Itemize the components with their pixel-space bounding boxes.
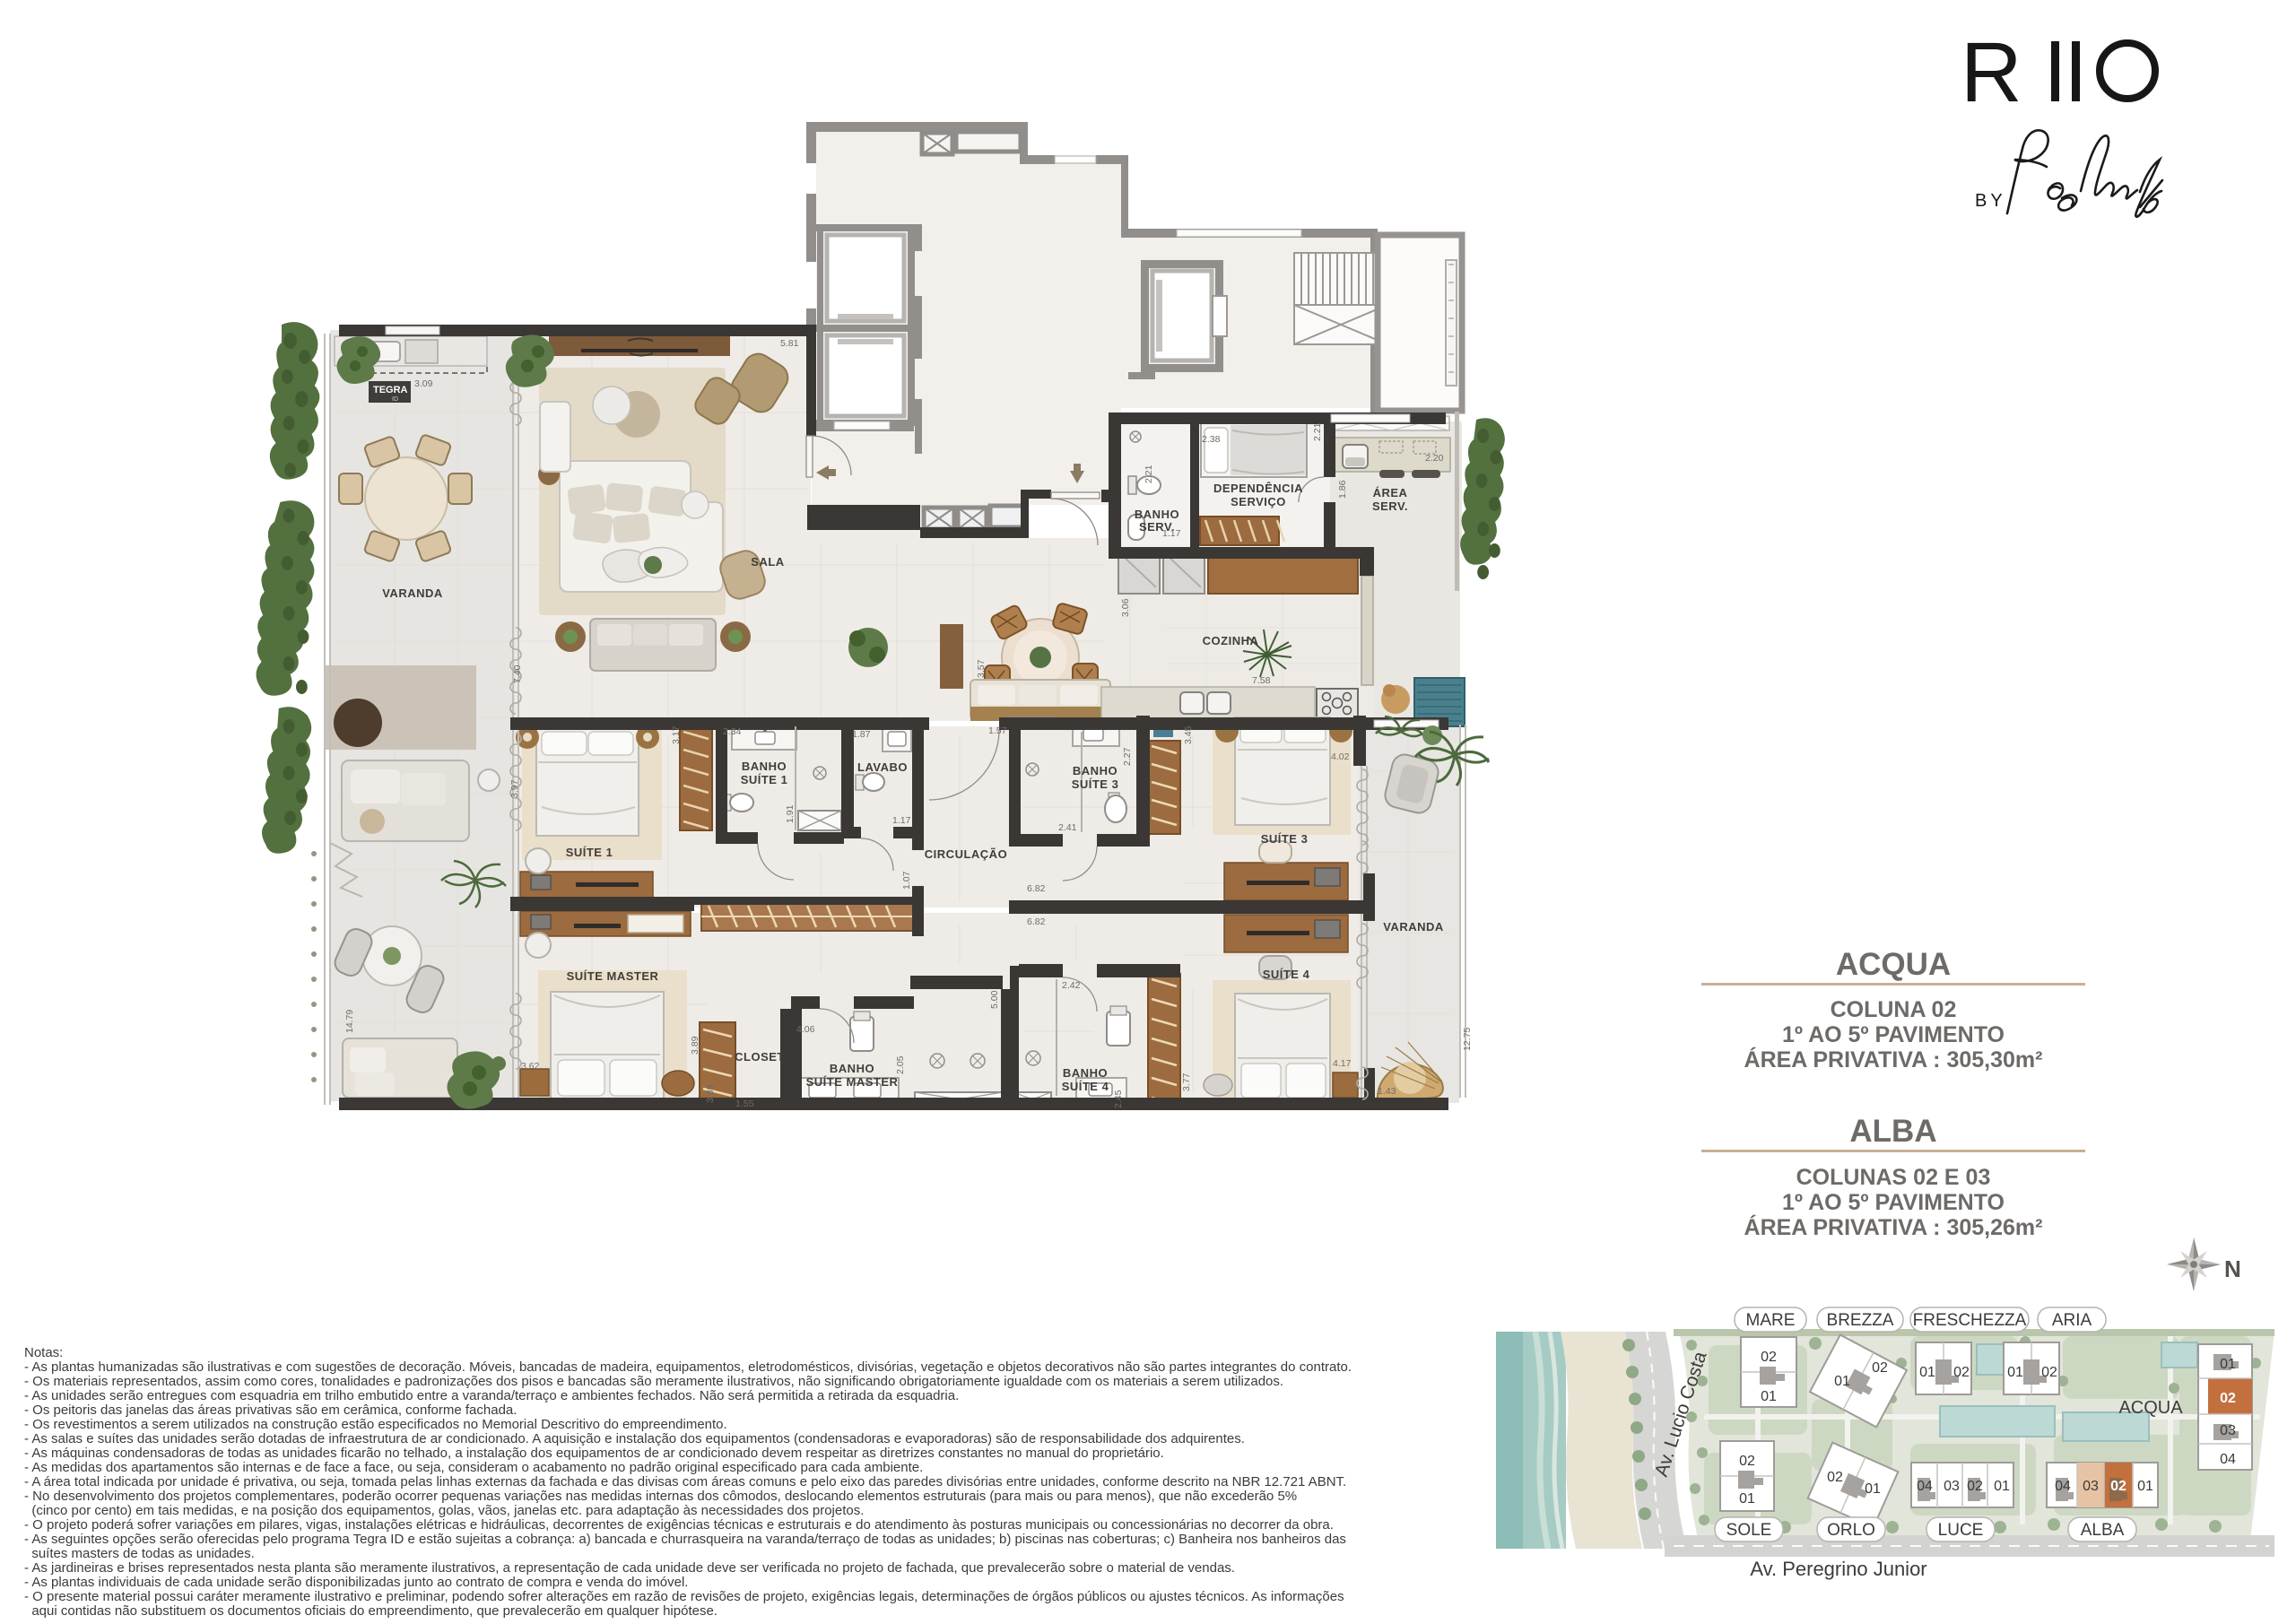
svg-text:1.57: 1.57 [988, 725, 1007, 736]
svg-text:2.42: 2.42 [1062, 980, 1081, 991]
svg-text:- As seguintes opções serão of: - As seguintes opções serão oferecidas p… [24, 1532, 1346, 1547]
svg-text:02: 02 [1761, 1350, 1777, 1365]
svg-text:R: R [1961, 25, 2024, 120]
svg-text:SUÍTE 3: SUÍTE 3 [1261, 832, 1309, 846]
svg-text:2.34: 2.34 [723, 726, 742, 737]
svg-text:01: 01 [1834, 1374, 1850, 1389]
svg-text:DEPENDÊNCIA: DEPENDÊNCIA [1213, 482, 1303, 495]
svg-text:2.38: 2.38 [1202, 434, 1221, 445]
svg-text:02: 02 [1953, 1365, 1970, 1380]
svg-text:- As jardineiras e brises repr: - As jardineiras e brises representados … [24, 1560, 1235, 1576]
svg-text:SERV.: SERV. [1372, 499, 1408, 513]
svg-text:ACQUA: ACQUA [2118, 1398, 2183, 1418]
svg-text:MARE: MARE [1746, 1311, 1796, 1330]
svg-text:ALBA: ALBA [1849, 1114, 1936, 1149]
svg-text:BANHO: BANHO [830, 1062, 874, 1075]
svg-text:CIRCULAÇÃO: CIRCULAÇÃO [925, 847, 1007, 861]
svg-text:6.82: 6.82 [1027, 883, 1046, 894]
svg-text:BREZZA: BREZZA [1827, 1311, 1894, 1330]
svg-text:03: 03 [2220, 1423, 2236, 1438]
svg-text:LUCE: LUCE [1938, 1521, 1984, 1540]
svg-text:Notas:: Notas: [24, 1345, 63, 1360]
svg-text:01: 01 [2137, 1479, 2153, 1494]
svg-text:1.17: 1.17 [1162, 528, 1181, 539]
svg-text:- As medidas dos apartamentos: - As medidas dos apartamentos são intern… [24, 1460, 923, 1475]
svg-text:12.75: 12.75 [1462, 1028, 1473, 1051]
svg-text:3.09: 3.09 [414, 378, 433, 389]
svg-text:SUÍTE 4: SUÍTE 4 [1263, 968, 1310, 981]
svg-text:- Os revestimentos a serem uti: - Os revestimentos a serem utilizados na… [24, 1417, 727, 1432]
svg-text:ORLO: ORLO [1827, 1521, 1875, 1540]
svg-text:1.86: 1.86 [1337, 480, 1348, 499]
svg-text:7.40: 7.40 [512, 664, 523, 683]
svg-text:02: 02 [2110, 1479, 2126, 1494]
svg-text:VARANDA: VARANDA [382, 586, 443, 600]
svg-text:BANHO: BANHO [1063, 1066, 1108, 1080]
svg-text:FRESCHEZZA: FRESCHEZZA [1913, 1311, 2027, 1330]
svg-text:02: 02 [1827, 1470, 1843, 1485]
svg-text:SUÍTE 3: SUÍTE 3 [1072, 777, 1119, 791]
svg-text:(cinco por cento) em tais medi: (cinco por cento) em tais medidas, e na … [24, 1503, 864, 1518]
svg-text:03: 03 [2083, 1479, 2099, 1494]
svg-text:2.45: 2.45 [1113, 1090, 1124, 1108]
svg-text:SUÍTE MASTER: SUÍTE MASTER [806, 1075, 899, 1089]
svg-text:SUÍTE 4: SUÍTE 4 [1062, 1080, 1109, 1093]
svg-text:01: 01 [2220, 1357, 2236, 1372]
svg-text:SUÍTE 1: SUÍTE 1 [741, 773, 788, 786]
svg-text:1º AO 5º PAVIMENTO: 1º AO 5º PAVIMENTO [1782, 1190, 2005, 1215]
svg-text:02: 02 [2041, 1365, 2057, 1380]
svg-text:LAVABO: LAVABO [857, 760, 908, 774]
svg-text:- O projeto poderá sofrer vari: - O projeto poderá sofrer variações em p… [24, 1517, 1334, 1533]
svg-text:3.62: 3.62 [521, 1061, 540, 1072]
svg-text:- No desenvolvimento dos proje: - No desenvolvimento dos projetos comple… [24, 1489, 1297, 1504]
svg-text:3.57: 3.57 [976, 659, 987, 678]
svg-text:1.07: 1.07 [901, 871, 912, 890]
svg-text:ÁREA PRIVATIVA : 305,30m²: ÁREA PRIVATIVA : 305,30m² [1744, 1046, 2043, 1073]
svg-text:3.97: 3.97 [509, 779, 520, 798]
svg-text:2.21: 2.21 [1312, 422, 1323, 441]
svg-text:7.58: 7.58 [1252, 675, 1271, 686]
svg-text:04: 04 [2220, 1452, 2236, 1467]
svg-text:ACQUA: ACQUA [1836, 947, 1951, 982]
svg-text:ÁREA PRIVATIVA : 305,26m²: ÁREA PRIVATIVA : 305,26m² [1744, 1214, 2043, 1240]
svg-text:COLUNAS 02 E 03: COLUNAS 02 E 03 [1796, 1165, 1991, 1190]
svg-text:BY: BY [1975, 191, 2006, 211]
svg-text:SUÍTE 1: SUÍTE 1 [566, 846, 613, 859]
svg-text:ID: ID [392, 396, 398, 403]
svg-text:BANHO: BANHO [742, 760, 787, 773]
svg-text:- As salas e suítes das unidad: - As salas e suítes das unidades serão d… [24, 1431, 1245, 1446]
svg-text:SOLE: SOLE [1726, 1521, 1772, 1540]
svg-text:02: 02 [1739, 1454, 1755, 1469]
svg-text:- As plantas humanizadas são i: - As plantas humanizadas são ilustrativa… [24, 1359, 1352, 1375]
svg-text:1.17: 1.17 [892, 815, 911, 826]
svg-text:TEGRA: TEGRA [373, 385, 408, 395]
svg-text:3.17: 3.17 [671, 725, 682, 744]
svg-text:BANHO: BANHO [1135, 508, 1179, 521]
svg-text:- O presente material possui c: - O presente material possui caráter mer… [24, 1589, 1344, 1604]
svg-text:01: 01 [2007, 1365, 2023, 1380]
svg-text:04: 04 [2055, 1479, 2071, 1494]
svg-text:01: 01 [1739, 1491, 1755, 1507]
svg-text:02: 02 [2220, 1391, 2236, 1406]
svg-text:01: 01 [1919, 1365, 1935, 1380]
svg-text:SUÍTE MASTER: SUÍTE MASTER [567, 969, 659, 983]
svg-text:VARANDA: VARANDA [1383, 920, 1444, 934]
svg-text:N: N [2224, 1255, 2241, 1282]
svg-text:ALBA: ALBA [2081, 1521, 2125, 1540]
svg-text:4.02: 4.02 [1331, 751, 1350, 762]
svg-text:2.20: 2.20 [1425, 453, 1444, 464]
svg-text:6.82: 6.82 [1027, 916, 1046, 927]
svg-text:14.79: 14.79 [344, 1010, 355, 1033]
svg-text:- As unidades serão entregues: - As unidades serão entregues com esquad… [24, 1388, 959, 1403]
svg-text:3.89: 3.89 [690, 1036, 700, 1055]
svg-text:CLOSET: CLOSET [735, 1050, 785, 1064]
svg-text:01: 01 [1865, 1481, 1881, 1497]
svg-text:- As máquinas condensadoras de: - As máquinas condensadoras de todas as … [24, 1446, 1164, 1461]
svg-text:1.55: 1.55 [735, 1099, 754, 1109]
svg-text:- Os peitoris das janelas das: - Os peitoris das janelas das áreas priv… [24, 1403, 517, 1418]
svg-text:2.05: 2.05 [895, 1055, 906, 1074]
svg-text:2.41: 2.41 [1058, 822, 1077, 833]
svg-text:01: 01 [1761, 1389, 1777, 1404]
svg-text:SERVIÇO: SERVIÇO [1231, 495, 1286, 508]
svg-text:COZINHA: COZINHA [1203, 634, 1259, 647]
svg-text:1.43: 1.43 [1378, 1086, 1396, 1097]
svg-text:Av. Peregrino Junior: Av. Peregrino Junior [1750, 1558, 1926, 1580]
svg-text:02: 02 [1872, 1360, 1888, 1376]
svg-text:4.17: 4.17 [1333, 1058, 1352, 1069]
svg-text:ARIA: ARIA [2052, 1311, 2092, 1330]
svg-text:03: 03 [1944, 1479, 1960, 1494]
svg-text:aqui contidas não substituem o: aqui contidas não substituem os document… [24, 1603, 717, 1619]
svg-text:BANHO: BANHO [1073, 764, 1118, 777]
svg-text:1.87: 1.87 [852, 729, 871, 740]
svg-text:1º AO 5º PAVIMENTO: 1º AO 5º PAVIMENTO [1782, 1022, 2005, 1047]
svg-text:SALA: SALA [751, 555, 785, 569]
svg-text:1.91: 1.91 [785, 804, 796, 823]
svg-text:04: 04 [1917, 1479, 1933, 1494]
svg-text:3.45: 3.45 [1183, 725, 1194, 744]
svg-text:3.77: 3.77 [1181, 1073, 1192, 1091]
svg-text:- Os materiais representados,: - Os materiais representados, assim como… [24, 1374, 1283, 1389]
svg-text:suítes masters de todas as uni: suítes masters de todas as unidades. [24, 1546, 255, 1561]
svg-text:02: 02 [1967, 1479, 1983, 1494]
svg-text:5.81: 5.81 [780, 338, 799, 349]
svg-text:2.21: 2.21 [1144, 465, 1154, 483]
svg-text:3.06: 3.06 [1120, 598, 1131, 617]
svg-text:3.89: 3.89 [705, 1084, 716, 1103]
svg-text:COLUNA 02: COLUNA 02 [1831, 997, 1957, 1022]
svg-text:2.27: 2.27 [1122, 747, 1133, 766]
svg-text:- As plantas individuais de ca: - As plantas individuais de cada unidade… [24, 1575, 688, 1590]
svg-text:ÁREA: ÁREA [1373, 486, 1408, 499]
svg-text:- A área total indicada por un: - A área total indicada por unidade é pr… [24, 1474, 1346, 1489]
svg-text:4.06: 4.06 [796, 1024, 815, 1035]
svg-text:5.00: 5.00 [989, 990, 1000, 1009]
svg-text:01: 01 [1994, 1479, 2010, 1494]
